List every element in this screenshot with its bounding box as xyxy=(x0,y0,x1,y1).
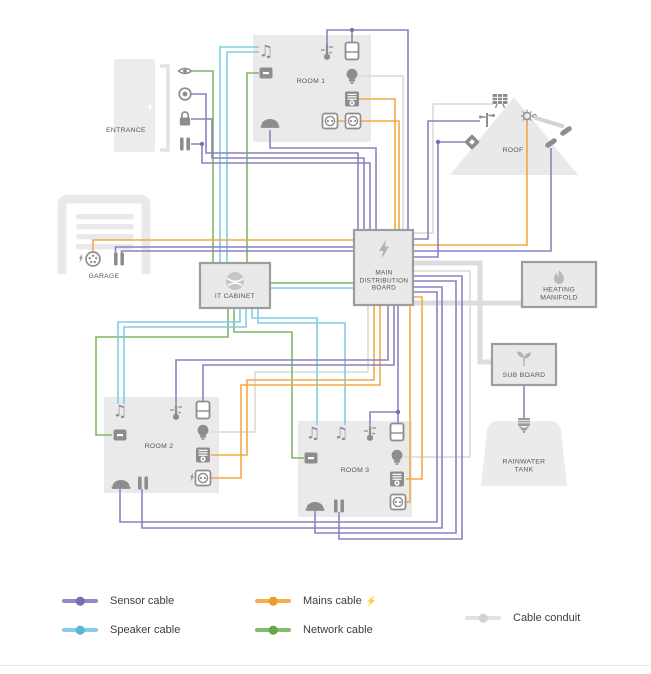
junction-dot xyxy=(200,142,204,146)
legend-label: Sensor cable xyxy=(110,595,174,607)
it-cabinet-globe-icon xyxy=(226,272,244,290)
room3-network-port-icon xyxy=(305,453,318,464)
sens-entrance-switch xyxy=(191,144,370,230)
legend-item-speaker: Speaker cable xyxy=(62,624,180,636)
net-entrance-camera xyxy=(192,71,213,263)
mains-cable-swatch xyxy=(255,599,291,603)
spk-room2-a xyxy=(118,308,240,404)
garage-ev-socket-icon xyxy=(86,252,100,266)
entrance-lock-icon xyxy=(180,112,190,126)
room3-label: ROOM 3 xyxy=(341,467,370,475)
room2-window-sensor-icon xyxy=(197,402,210,419)
room1-socket-icon xyxy=(346,114,361,129)
room1-socket-icon xyxy=(323,114,338,129)
conduit-mdb-subboard xyxy=(413,263,492,362)
garage-door-slats xyxy=(76,214,134,250)
sens-garage-b xyxy=(122,251,355,253)
sens-garage-a xyxy=(116,247,355,253)
rainwater-tank-label: RAINWATER TANK xyxy=(501,458,547,473)
room2-network-port-icon xyxy=(114,430,127,441)
junction-dot xyxy=(436,140,440,144)
bottom-divider xyxy=(0,665,651,666)
roof-area xyxy=(450,97,578,175)
legend-label: Network cable xyxy=(303,624,373,636)
sens-room2-thermostat xyxy=(176,305,388,404)
room1-window-sensor-icon xyxy=(346,43,359,60)
legend-label: Mains cable xyxy=(303,595,362,607)
legend-item-conduit: Cable conduit xyxy=(465,612,580,624)
sens-room2-window xyxy=(203,305,394,402)
legend-item-sensor: Sensor cable xyxy=(62,595,174,607)
entrance-doorbell-icon xyxy=(179,88,191,100)
sensor-cable-swatch xyxy=(62,599,98,603)
legend-label: Cable conduit xyxy=(513,612,580,624)
entrance-label: ENTRANCE xyxy=(106,127,146,135)
junction-dot xyxy=(396,410,400,414)
room3-window-sensor-icon xyxy=(391,424,404,441)
legend-item-network: Network cable xyxy=(255,624,373,636)
room3-socket-icon xyxy=(391,495,406,510)
entrance-switch-icon xyxy=(180,138,190,151)
mains-bolt-icon: ⚡ xyxy=(366,596,377,607)
roof-label: ROOF xyxy=(503,147,524,155)
smart-home-wiring-diagram: ♫ xyxy=(0,0,651,674)
junction-dot xyxy=(350,28,354,32)
room2-speaker-icon xyxy=(113,402,127,421)
room2-label: ROOM 2 xyxy=(145,443,174,451)
wiring-diagram-canvas: ♫ xyxy=(0,0,651,674)
room1-speaker-icon xyxy=(259,42,273,61)
room3-speaker-icon xyxy=(334,424,348,443)
sub-board-label: SUB BOARD xyxy=(503,372,546,380)
room3-speaker-icon xyxy=(306,424,320,443)
entrance-door-frame xyxy=(160,66,168,150)
legend-label: Speaker cable xyxy=(110,624,180,636)
room1-label: ROOM 1 xyxy=(297,78,326,86)
main-distribution-board-label: MAIN DISTRIBUTION BOARD xyxy=(358,270,410,293)
network-cable-swatch xyxy=(255,628,291,632)
room1-network-port-icon xyxy=(260,68,273,79)
conduit-cable-swatch xyxy=(465,616,501,620)
garage-bolt-icon xyxy=(79,254,83,263)
roof-solar-panel-icon xyxy=(493,94,508,108)
garage-label: GARAGE xyxy=(89,273,120,281)
room2-radiator-icon xyxy=(196,448,210,463)
spk-room3-a xyxy=(252,308,317,425)
entrance-camera-icon xyxy=(179,69,192,74)
it-cabinet-label: IT CABINET xyxy=(215,293,255,301)
heating-manifold-label: HEATING MANIFOLD xyxy=(533,286,585,301)
net-room3-port xyxy=(234,308,304,458)
sens-room1-motion xyxy=(270,130,376,230)
garage-switch-icon xyxy=(114,253,124,266)
speaker-cable-swatch xyxy=(62,628,98,632)
legend-item-mains: Mains cable ⚡ xyxy=(255,595,377,607)
door-handle xyxy=(148,104,151,109)
main-distribution-board-box xyxy=(354,230,413,305)
area-shapes xyxy=(62,35,578,517)
room1-radiator-icon xyxy=(345,92,359,107)
spk-room3-b xyxy=(258,308,345,425)
room2-socket-icon xyxy=(196,471,211,486)
rainwater-tank-shape xyxy=(481,421,567,486)
room3-radiator-icon xyxy=(390,472,404,487)
